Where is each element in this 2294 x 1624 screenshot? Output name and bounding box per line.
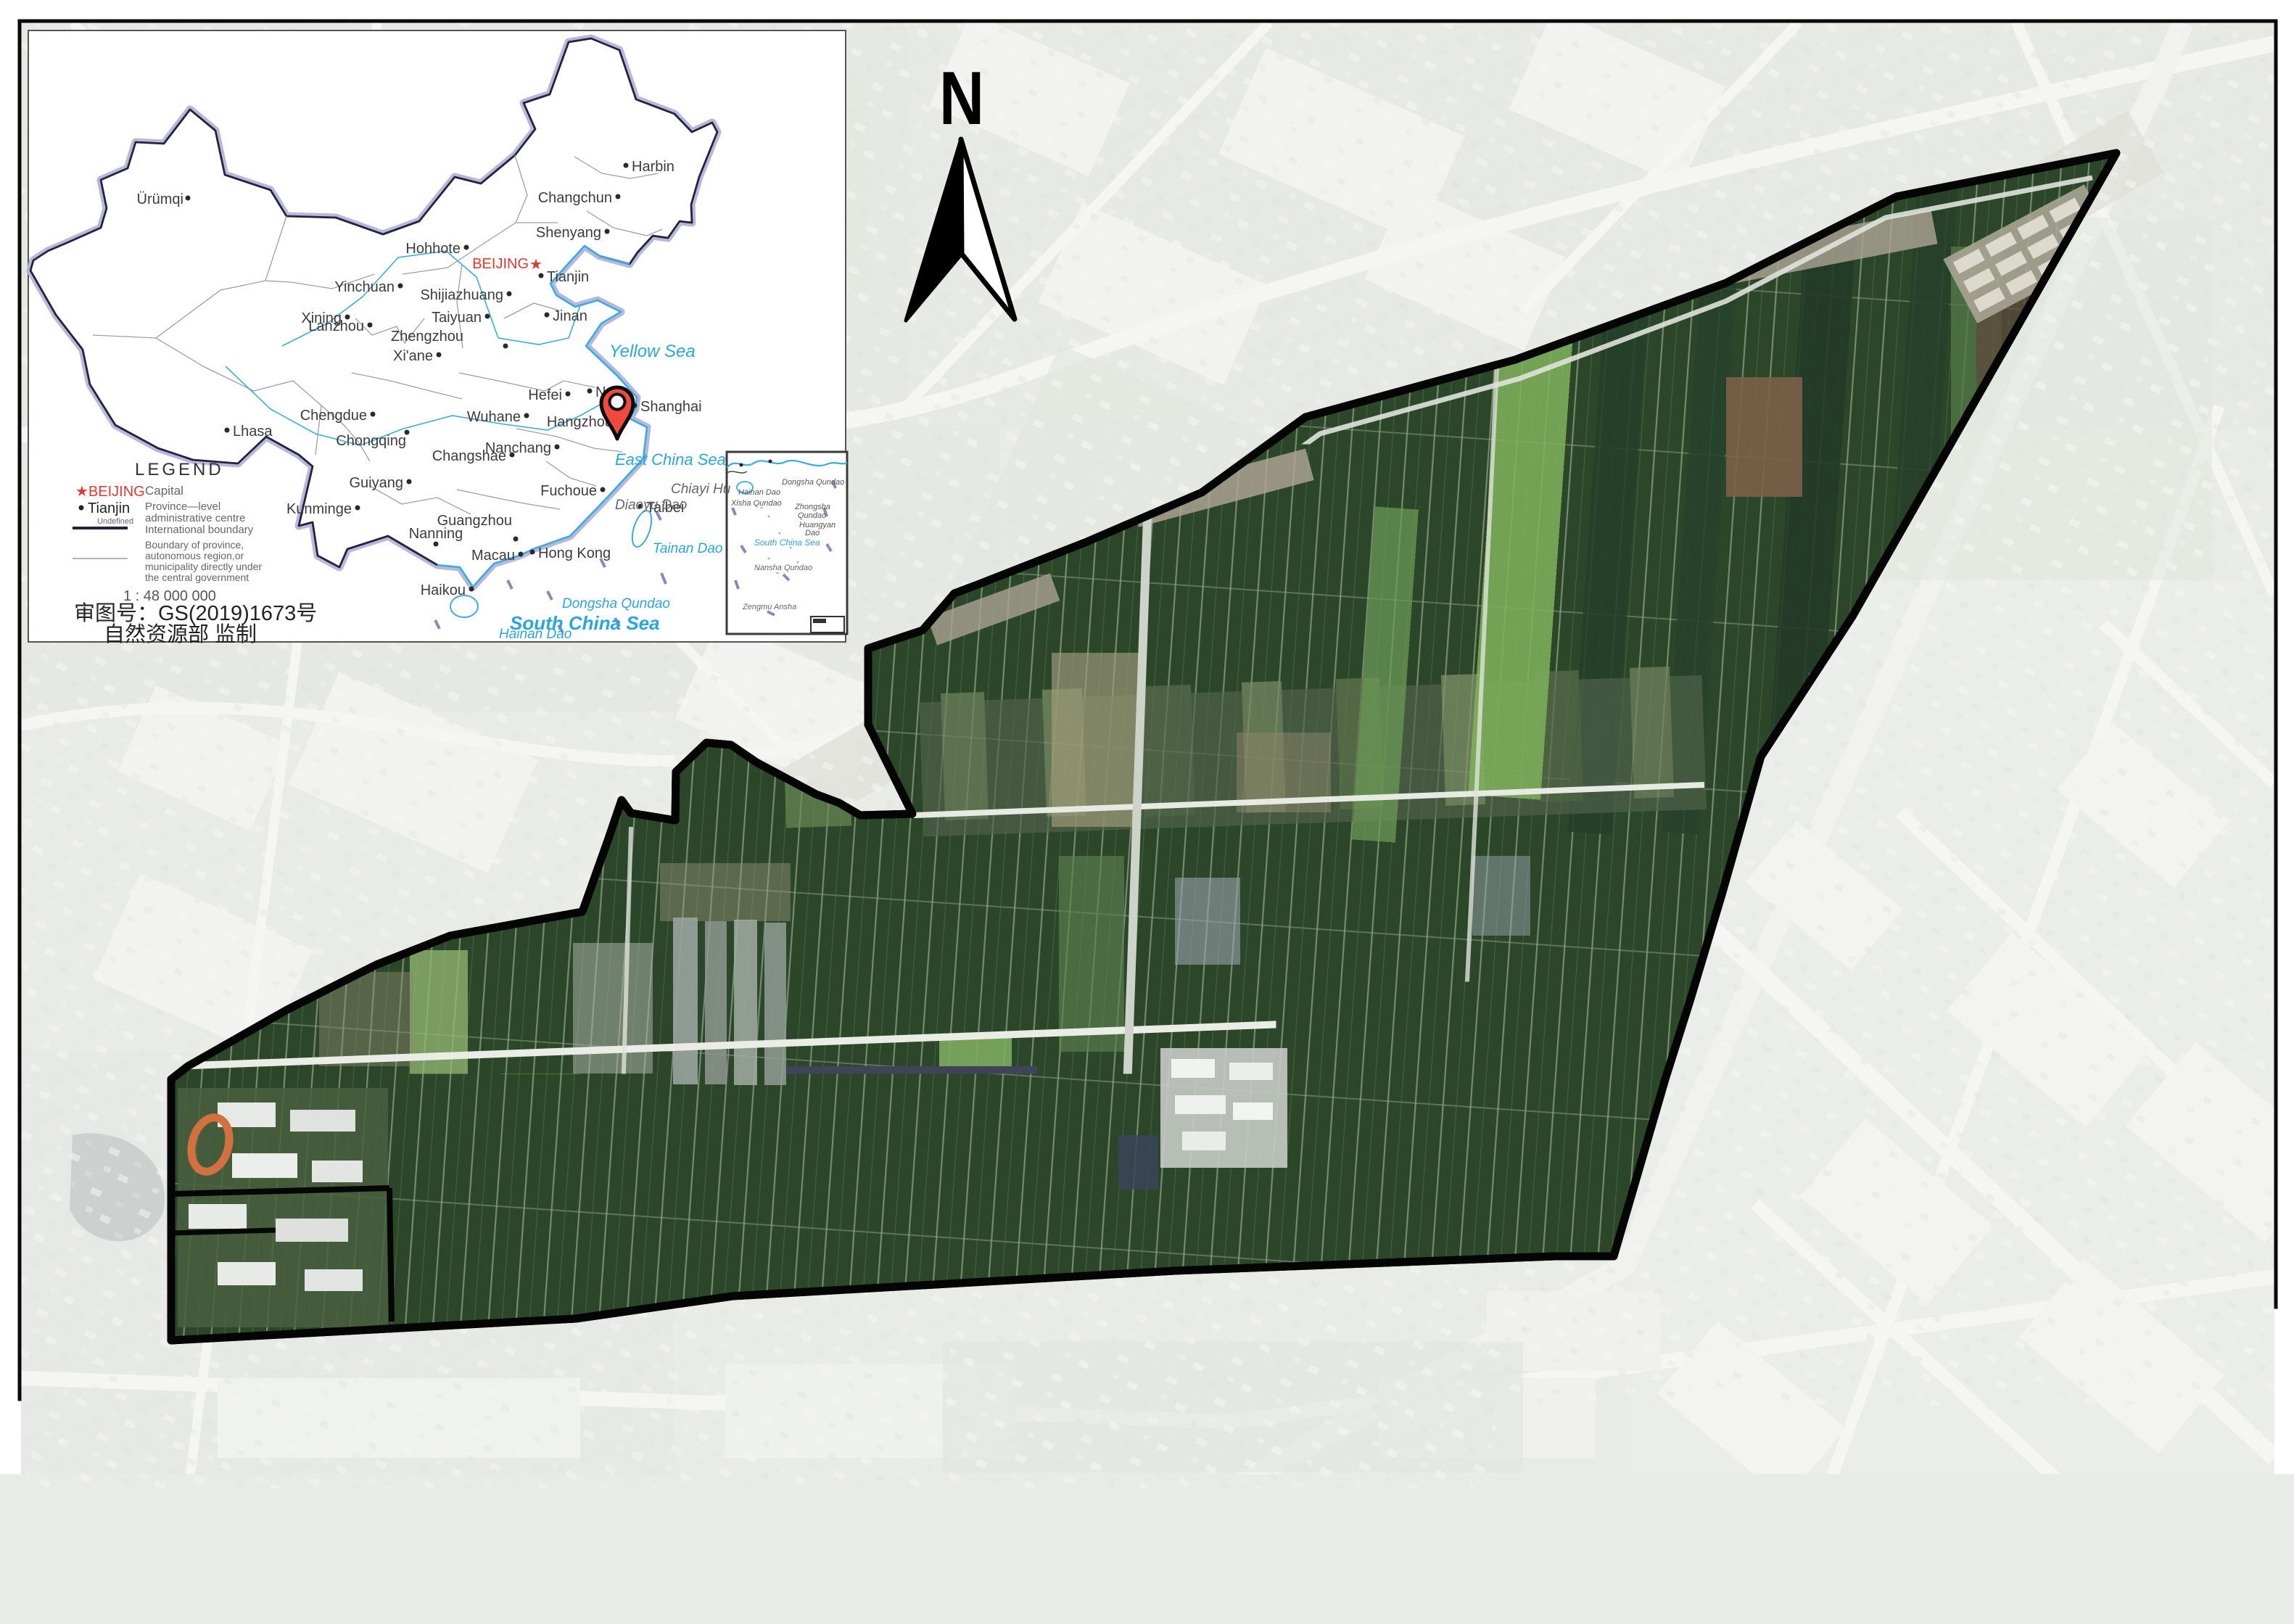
svg-text:Yellow Sea: Yellow Sea [609,342,696,361]
svg-text:Hong Kong: Hong Kong [538,545,611,561]
svg-text:Shanghai: Shanghai [640,399,702,415]
svg-text:East China Sea: East China Sea [615,450,726,469]
svg-text:Macau: Macau [471,548,515,564]
svg-text:Xi'ane: Xi'ane [393,348,433,364]
svg-text:International boundary: International boundary [145,524,254,536]
svg-text:Location: Location [180,1520,421,1606]
svg-text:Shenyang: Shenyang [536,225,601,241]
svg-text:Zengmu Ansha: Zengmu Ansha [742,603,796,611]
svg-text:Ürümqi: Ürümqi [137,191,183,207]
svg-text:Hohhote: Hohhote [405,241,461,257]
svg-text:Lhasa: Lhasa [233,424,273,440]
svg-text:Province—level: Province—level [145,500,220,513]
svg-text:Hainan Dao: Hainan Dao [499,627,572,642]
svg-text:Lanzhou: Lanzhou [308,318,364,334]
svg-text:Fuchoue: Fuchoue [540,483,597,499]
svg-text:Undefined: Undefined [97,517,133,526]
svg-text:South China Sea: South China Sea [754,537,820,548]
svg-text:Taiyuan: Taiyuan [432,310,482,326]
svg-text:Guangzhou: Guangzhou [437,513,512,529]
svg-text:Chongqing: Chongqing [336,433,406,449]
svg-text:Chengdue: Chengdue [300,408,367,424]
svg-text:Qundao: Qundao [798,511,826,520]
svg-text:autonomous region,or: autonomous region,or [145,550,244,561]
svg-text:Tainan Dao: Tainan Dao [653,541,722,556]
svg-text:1.8: 1.8 [1744,1511,1791,1558]
svg-text:Chiayi Hu: Chiayi Hu [671,482,731,497]
svg-text:Harbin: Harbin [632,159,674,175]
svg-text:自然资源部 监制: 自然资源部 监制 [104,622,257,646]
svg-text:BEIJING: BEIJING [472,256,529,272]
svg-text:Km: Km [2186,1541,2248,1588]
svg-text:LEGEND: LEGEND [135,460,224,479]
svg-text:Haikou: Haikou [421,582,466,598]
svg-text:审图号：GS(2019)1673号: 审图号：GS(2019)1673号 [74,601,317,625]
svg-text:Hainan Dao: Hainan Dao [738,488,780,497]
svg-text:administrative centre: administrative centre [145,512,245,524]
svg-text:Tianjin: Tianjin [88,500,130,516]
svg-text:Shijiazhuang: Shijiazhuang [420,287,503,303]
svg-text:Study Site: Study Site [1003,1520,1284,1606]
svg-text:Changchun: Changchun [538,190,612,206]
svg-text:Kunminge: Kunminge [286,501,352,517]
svg-text:Wuhane: Wuhane [467,409,521,425]
svg-text:Guiyang: Guiyang [350,475,404,491]
svg-text:Hangzhou: Hangzhou [547,414,613,430]
svg-text:0: 0 [1349,1511,1372,1558]
svg-text:★: ★ [529,257,542,273]
svg-text:Hefei: Hefei [528,387,562,403]
svg-text:N: N [939,57,984,141]
svg-text:Nansha Qundao: Nansha Qundao [754,564,812,572]
svg-text:Dongsha Qundao: Dongsha Qundao [782,478,844,487]
svg-text:Dongsha Qundao: Dongsha Qundao [562,596,670,611]
svg-text:Capital: Capital [145,484,183,498]
svg-text:Xisha Qundao: Xisha Qundao [730,499,782,508]
svg-text:Diaoyu Dao: Diaoyu Dao [615,498,687,513]
svg-text:Zhengzhou: Zhengzhou [391,329,463,345]
svg-text:Yinchuan: Yinchuan [334,279,395,295]
svg-text:Tianjin: Tianjin [547,269,589,285]
svg-text:Jinan: Jinan [553,308,587,324]
svg-text:municipality directly under: municipality directly under [145,561,262,572]
svg-text:Zhongsha: Zhongsha [794,503,830,511]
svg-text:0.45: 0.45 [1423,1511,1498,1558]
svg-text:Legend: Legend [500,1520,730,1606]
svg-text:Dao: Dao [805,529,820,537]
svg-text:★BEIJING: ★BEIJING [75,484,145,500]
svg-text:the central government: the central government [145,572,249,583]
svg-text:0.9: 0.9 [1539,1511,1587,1558]
svg-text:2.7: 2.7 [1948,1511,1996,1558]
svg-text:Nanchang: Nanchang [485,440,551,456]
svg-text:Boundary of province,: Boundary of province, [145,539,244,551]
